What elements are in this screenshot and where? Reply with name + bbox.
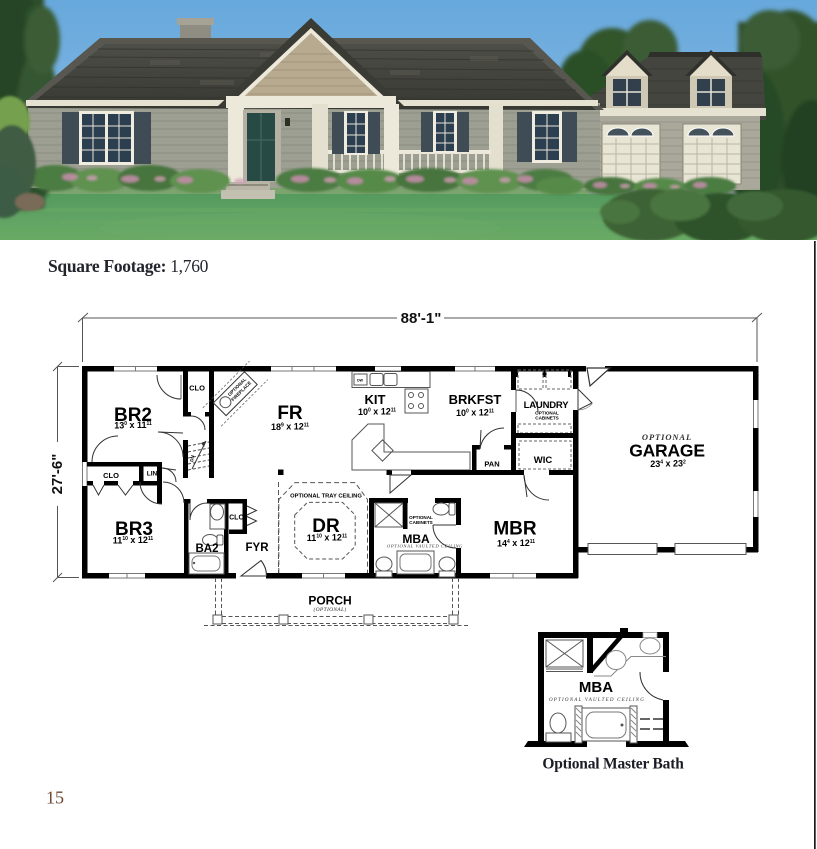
svg-text:OPTIONAL VAULTED CEILING: OPTIONAL VAULTED CEILING bbox=[387, 544, 463, 549]
svg-text:KIT: KIT bbox=[365, 392, 386, 407]
svg-text:Square Footage: 1,760: Square Footage: 1,760 bbox=[48, 256, 209, 276]
svg-text:MBR: MBR bbox=[493, 519, 537, 540]
svg-text:OPTIONAL VAULTED CEILING: OPTIONAL VAULTED CEILING bbox=[549, 698, 645, 703]
svg-text:CLO: CLO bbox=[103, 471, 119, 480]
svg-text:OPTIONAL: OPTIONAL bbox=[642, 432, 692, 442]
svg-text:130 x 1111: 130 x 1111 bbox=[114, 420, 152, 430]
svg-text:BA2: BA2 bbox=[195, 543, 218, 555]
svg-text:MBA: MBA bbox=[579, 679, 613, 696]
svg-text:WIC: WIC bbox=[534, 455, 553, 466]
svg-text:CABINETS: CABINETS bbox=[409, 520, 432, 525]
svg-text:FYR: FYR bbox=[246, 542, 270, 554]
svg-text:(OPTIONAL): (OPTIONAL) bbox=[314, 606, 347, 613]
svg-text:189 x 1211: 189 x 1211 bbox=[271, 422, 309, 432]
svg-text:144 x 1211: 144 x 1211 bbox=[497, 538, 535, 548]
svg-text:234 x 232: 234 x 232 bbox=[650, 459, 686, 469]
svg-text:LIN: LIN bbox=[147, 471, 158, 478]
svg-text:CLO: CLO bbox=[229, 515, 244, 522]
svg-text:100 x 1211: 100 x 1211 bbox=[358, 407, 396, 417]
svg-text:CABINETS: CABINETS bbox=[535, 416, 558, 421]
svg-text:DN: DN bbox=[189, 455, 195, 462]
svg-text:BRKFST: BRKFST bbox=[449, 392, 502, 407]
svg-text:1110 x 1211: 1110 x 1211 bbox=[307, 533, 348, 543]
svg-text:OPTIONAL TRAY CEILING: OPTIONAL TRAY CEILING bbox=[290, 494, 362, 500]
svg-text:LAUNDRY: LAUNDRY bbox=[524, 400, 570, 411]
svg-text:88'-1": 88'-1" bbox=[401, 310, 442, 327]
svg-text:GARAGE: GARAGE bbox=[629, 441, 705, 461]
svg-text:15: 15 bbox=[46, 788, 64, 808]
svg-text:PAN: PAN bbox=[484, 460, 499, 469]
svg-text:Optional Master Bath: Optional Master Bath bbox=[542, 756, 684, 773]
svg-text:27'-6": 27'-6" bbox=[49, 454, 66, 495]
svg-text:DW: DW bbox=[357, 379, 364, 383]
svg-text:PORCH: PORCH bbox=[308, 594, 351, 608]
svg-text:100 x 1211: 100 x 1211 bbox=[456, 408, 494, 418]
svg-text:1110 x 1211: 1110 x 1211 bbox=[113, 535, 154, 545]
svg-text:CLO: CLO bbox=[189, 384, 205, 393]
